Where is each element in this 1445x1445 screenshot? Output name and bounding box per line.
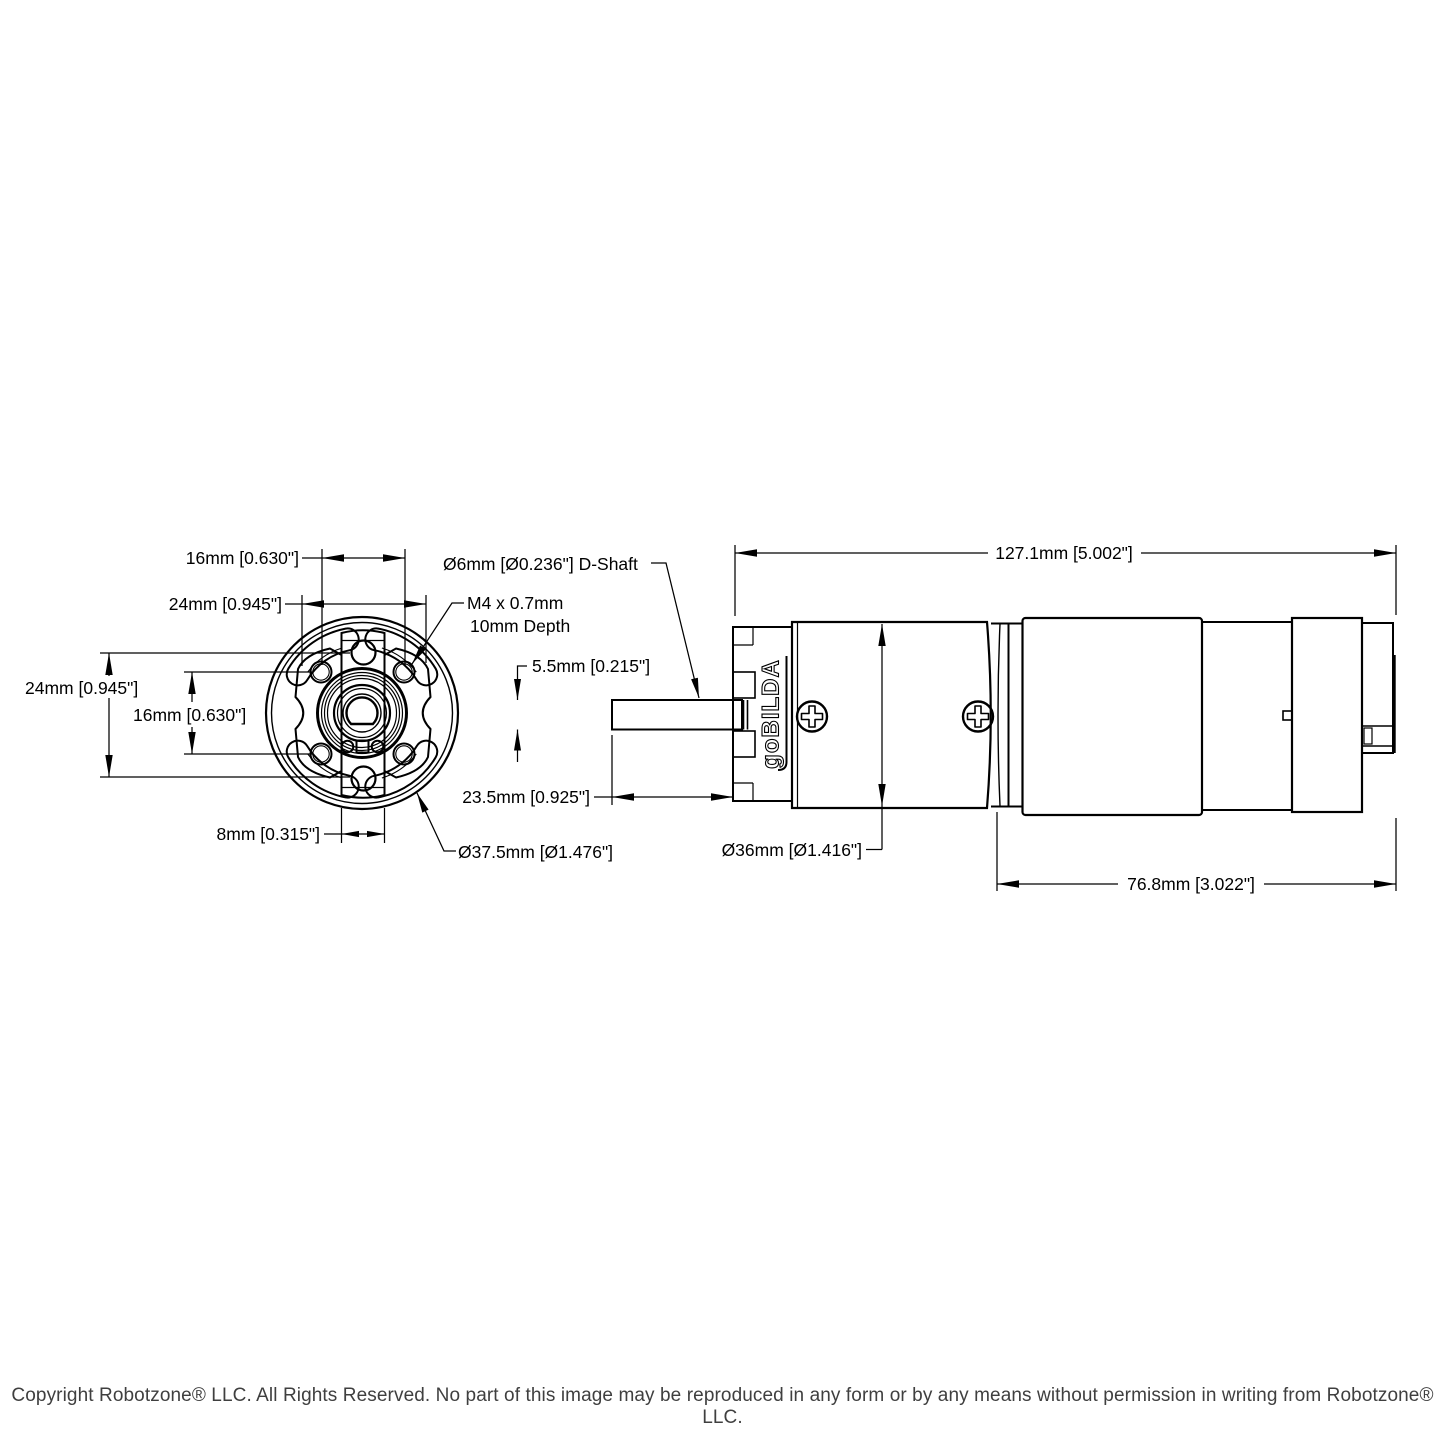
- dim-label: 24mm [0.945"]: [25, 678, 138, 698]
- motor-can: [1023, 618, 1203, 815]
- rear-mid-section: [1202, 622, 1292, 810]
- dim-label: 127.1mm [5.002"]: [995, 543, 1133, 563]
- arc-slots: [287, 628, 438, 797]
- technical-drawing-page: 16mm [0.630"] 24mm [0.945"] 24mm [0.945"…: [0, 0, 1445, 1445]
- face-outer-circle: [266, 617, 458, 809]
- dim-shaft-length: 23.5mm [0.925"]: [462, 735, 733, 807]
- dim-label: 16mm [0.630"]: [133, 705, 246, 725]
- d-shaft-bore: [347, 697, 378, 724]
- gobilda-logo: goBILDA: [757, 659, 784, 769]
- phillips-screw-1: [797, 702, 827, 732]
- dim-label: 23.5mm [0.925"]: [462, 787, 590, 807]
- dim-label: Ø37.5mm [Ø1.476"]: [458, 842, 613, 862]
- dim-label: 24mm [0.945"]: [169, 594, 282, 614]
- label-m4-line2: 10mm Depth: [470, 616, 570, 636]
- copyright-notice: Copyright Robotzone® LLC. All Rights Res…: [0, 1385, 1445, 1429]
- gearbox-housing: [792, 622, 993, 808]
- gearmotor-dimension-drawing: 16mm [0.630"] 24mm [0.945"] 24mm [0.945"…: [0, 0, 1445, 1445]
- rear-housing: [1292, 618, 1362, 812]
- leader-m4-tap: M4 x 0.7mm 10mm Depth: [412, 593, 570, 664]
- center-line-holes: [352, 641, 376, 791]
- dim-label: 76.8mm [3.022"]: [1127, 874, 1255, 894]
- dim-label: Ø36mm [Ø1.416"]: [722, 840, 862, 860]
- dim-shaft-diameter: 5.5mm [0.215"]: [514, 656, 650, 762]
- m4-holes: [311, 662, 415, 765]
- encoder-end-cap: [1362, 623, 1395, 753]
- shaft-boss-upper: [733, 672, 755, 698]
- dim-body-length: 76.8mm [3.022"]: [997, 812, 1396, 894]
- hub: [318, 669, 407, 758]
- junction-ring: [991, 624, 1023, 807]
- dim-8mm-bottom: 8mm [0.315"]: [217, 808, 385, 844]
- dim-16mm-left: 16mm [0.630"]: [133, 672, 312, 754]
- dim-body-diameter: Ø36mm [Ø1.416"]: [722, 624, 886, 860]
- dim-label: 16mm [0.630"]: [186, 548, 299, 568]
- dim-label: 8mm [0.315"]: [217, 824, 320, 844]
- rear-tab-detail: [1283, 711, 1292, 720]
- label-m4-line1: M4 x 0.7mm: [467, 593, 563, 613]
- dim-label: 5.5mm [0.215"]: [532, 656, 650, 676]
- label-d-shaft: Ø6mm [Ø0.236"] D-Shaft: [443, 554, 638, 574]
- shaft-boss-lower: [733, 731, 755, 757]
- output-shaft: [612, 700, 742, 730]
- phillips-screw-2: [963, 702, 993, 732]
- dim-overall-length: 127.1mm [5.002"]: [735, 543, 1396, 616]
